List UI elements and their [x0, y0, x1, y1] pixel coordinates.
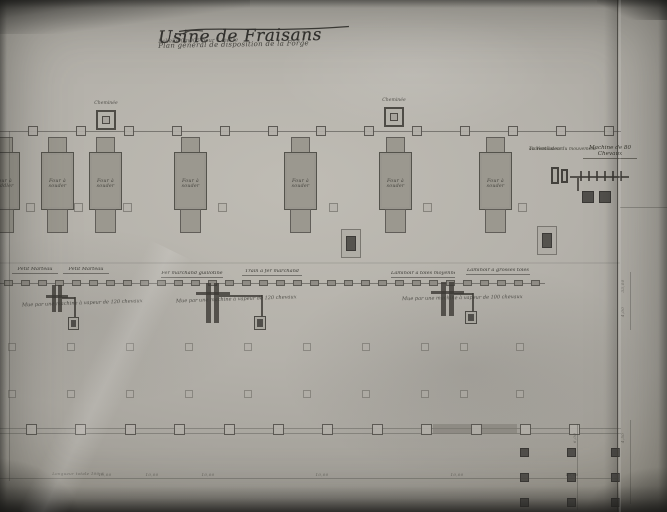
- column-square: [126, 343, 134, 351]
- column-square: [556, 126, 566, 136]
- dark-column: [611, 448, 620, 457]
- column-square: [516, 390, 524, 398]
- column-square: [460, 343, 468, 351]
- wall-block: [463, 280, 472, 286]
- column-square: [322, 424, 333, 435]
- column-square: [273, 424, 284, 435]
- column-square: [316, 126, 326, 136]
- hammer-core: [468, 314, 474, 321]
- column-square: [412, 126, 422, 136]
- dimension-mark: 6,00: [573, 428, 579, 448]
- building-foot: [485, 209, 506, 233]
- column-square: [303, 390, 311, 398]
- dark-column: [582, 191, 594, 203]
- margin-dimension-line: [630, 420, 631, 504]
- mill-caption: Mue par une machine à vapeur de 120 chev…: [22, 299, 160, 311]
- column-square: [174, 424, 185, 435]
- top-wall-line: [0, 131, 621, 132]
- wall-block: [276, 280, 285, 286]
- plan-drawing: Usine de Fraisans Plan général de dispos…: [0, 0, 667, 512]
- dimension-mark: 10,00: [93, 473, 117, 479]
- mill-label: Laminoir à grosses tôles: [466, 268, 530, 275]
- wall-block: [106, 280, 115, 286]
- wall-block: [429, 280, 438, 286]
- building-label: Four à souder: [174, 180, 207, 187]
- column-square: [224, 424, 235, 435]
- column-square: [123, 203, 132, 212]
- column-square: [244, 390, 252, 398]
- building-foot: [385, 209, 406, 233]
- dark-column: [567, 448, 576, 457]
- column-square: [76, 126, 86, 136]
- dimension-mark: 4,00: [621, 302, 627, 322]
- dimension-mark: 10,00: [310, 473, 334, 479]
- column-square: [518, 203, 527, 212]
- column-square: [362, 343, 370, 351]
- building-label: Four à souder: [89, 180, 122, 187]
- wall-block: [310, 280, 319, 286]
- building-foot: [290, 209, 311, 233]
- wall-block: [225, 280, 234, 286]
- ventilator-gearbox: [561, 169, 568, 183]
- wall-block: [123, 280, 132, 286]
- column-square: [74, 203, 83, 212]
- column-square: [244, 343, 252, 351]
- chimney-label: Cheminée: [374, 99, 414, 105]
- column-square: [329, 203, 338, 212]
- ventilator-gearbox: [551, 167, 559, 184]
- photograph-of-plan: Usine de Fraisans Plan général de dispos…: [0, 0, 667, 512]
- building-label: Four à souder: [284, 180, 317, 187]
- chimney-label: Cheminée: [86, 102, 126, 108]
- wall-block: [480, 280, 489, 286]
- dimension-mark: 10,00: [560, 473, 584, 479]
- column-square: [75, 424, 86, 435]
- mill-label: Laminoir à tôles moyennes: [391, 271, 455, 278]
- column-square: [423, 203, 432, 212]
- column-square: [172, 126, 182, 136]
- column-square: [516, 343, 524, 351]
- building-foot: [47, 209, 68, 233]
- column-square: [124, 126, 134, 136]
- wall-block: [191, 280, 200, 286]
- wall-block: [242, 280, 251, 286]
- dimension-mark: 10,00: [196, 473, 220, 479]
- shaft-bearing-tick: [604, 171, 606, 181]
- column-square: [508, 126, 518, 136]
- wall-block: [514, 280, 523, 286]
- column-square: [218, 203, 227, 212]
- wall-block: [157, 280, 166, 286]
- building-label: Four à souder: [41, 180, 74, 187]
- column-square: [185, 343, 193, 351]
- dark-column: [567, 498, 576, 507]
- shaft-bearing-tick: [612, 171, 614, 181]
- mill-caption: Mue par une machine à vapeur de 120 chev…: [176, 295, 316, 307]
- building-foot: [0, 209, 14, 233]
- left-border-line: [9, 131, 10, 481]
- wall-block: [21, 280, 30, 286]
- shaft-bearing-tick: [588, 171, 590, 181]
- wall-block: [497, 280, 506, 286]
- transmission-drop: [577, 178, 579, 191]
- wall-block: [412, 280, 421, 286]
- wall-block: [531, 280, 540, 286]
- mill-label: Train à fer marchand: [242, 269, 302, 276]
- fold-line: [617, 0, 618, 512]
- dimension-mark: 4,50: [621, 428, 627, 448]
- foundation-core: [346, 236, 356, 251]
- wall-block: [378, 280, 387, 286]
- wall-block: [293, 280, 302, 286]
- column-square: [185, 390, 193, 398]
- dark-column: [520, 498, 529, 507]
- mill-label: Petit Marteau: [63, 267, 109, 274]
- column-square: [26, 203, 35, 212]
- chimney-flue: [390, 113, 398, 121]
- chimney-flue: [102, 116, 110, 124]
- column-square: [126, 390, 134, 398]
- wall-block: [344, 280, 353, 286]
- margin-dimension-line: [630, 272, 631, 330]
- column-square: [604, 126, 614, 136]
- wall-block: [361, 280, 370, 286]
- dark-column: [599, 191, 611, 203]
- column-square: [421, 424, 432, 435]
- wall-block: [395, 280, 404, 286]
- foundation-core: [542, 233, 552, 248]
- wall-block: [38, 280, 47, 286]
- column-square: [67, 343, 75, 351]
- dark-column: [520, 448, 529, 457]
- building-label: Four à souder: [379, 180, 412, 187]
- column-square: [125, 424, 136, 435]
- building-label: Four à souder: [479, 180, 512, 187]
- building-label: Four à puddler: [0, 180, 20, 187]
- column-square: [471, 424, 482, 435]
- hammer-core: [71, 320, 76, 327]
- column-square: [421, 343, 429, 351]
- wall-block: [327, 280, 336, 286]
- title-block: Usine de Fraisans Plan général de dispos…: [158, 24, 368, 36]
- wall-block: [259, 280, 268, 286]
- dimension-mark: 10,00: [140, 473, 164, 479]
- wall-block: [174, 280, 183, 286]
- column-square: [421, 390, 429, 398]
- mill-label: Petit Marteau: [12, 267, 58, 274]
- shaft-bearing-tick: [580, 171, 582, 181]
- column-square: [26, 424, 37, 435]
- column-square: [303, 343, 311, 351]
- building-foot: [180, 209, 201, 233]
- column-square: [460, 126, 470, 136]
- column-square: [28, 126, 38, 136]
- column-square: [460, 390, 468, 398]
- dimension-mark: 10,00: [445, 473, 469, 479]
- column-square: [268, 126, 278, 136]
- wall-block: [140, 280, 149, 286]
- hammer-core: [257, 319, 263, 327]
- column-square: [362, 390, 370, 398]
- column-square: [67, 390, 75, 398]
- shaft-bearing-tick: [620, 171, 622, 181]
- wall-block: [72, 280, 81, 286]
- ventilator-note-line3: au Ventilateur: [529, 147, 562, 152]
- margin-line: [620, 207, 667, 208]
- mill-caption: Mue par une machine à vapeur de 100 chev…: [402, 295, 534, 304]
- shaft-bearing-tick: [596, 171, 598, 181]
- column-square: [520, 424, 531, 435]
- dimension-mark: 33,00: [621, 276, 627, 296]
- column-square: [364, 126, 374, 136]
- building-foot: [95, 209, 116, 233]
- wall-block: [89, 280, 98, 286]
- mill-label: Fer marchand guillotine: [161, 271, 223, 278]
- column-square: [220, 126, 230, 136]
- dark-column: [611, 498, 620, 507]
- column-square: [372, 424, 383, 435]
